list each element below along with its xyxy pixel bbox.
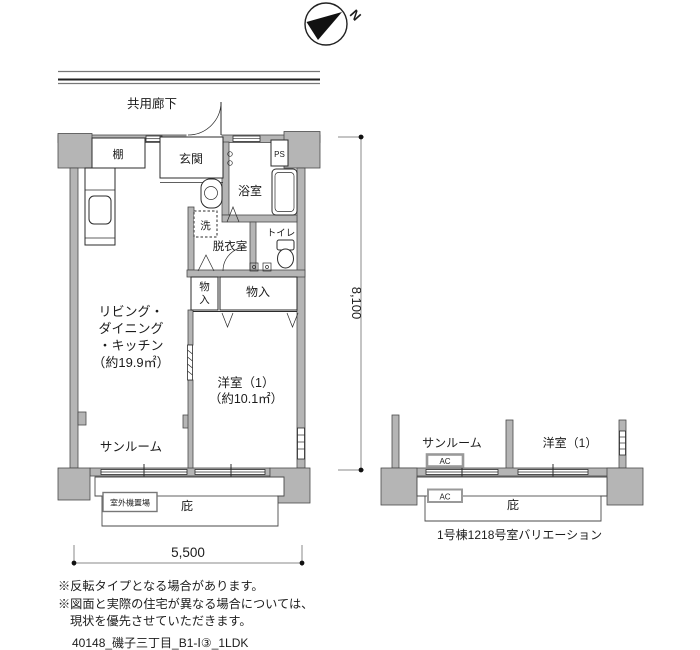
sunroom-label: サンルーム — [100, 440, 162, 454]
sliding-door — [188, 345, 193, 380]
kitchen-counter — [85, 168, 115, 245]
svg-text:（約19.9㎡）: （約19.9㎡） — [92, 355, 169, 370]
washbasin — [201, 179, 222, 208]
outdoor-unit-label: 室外機置場 — [110, 498, 150, 508]
closet-large-label: 物入 — [246, 285, 270, 299]
variation-western-room-label: 洋室（1） — [543, 435, 598, 450]
svg-text:（約10.1㎡）: （約10.1㎡） — [209, 391, 283, 406]
dimension-height-value: 8,100 — [349, 287, 364, 320]
main-plan: 玄関 棚 PS 浴室 — [58, 102, 320, 526]
variation-eaves-label: 庇 — [507, 497, 519, 512]
dressing-room-label: 脱衣室 — [213, 239, 248, 253]
note-line: 現状を優先させていただきます。 — [70, 614, 252, 628]
corner-column — [607, 468, 643, 505]
svg-text:ダイニング: ダイニング — [98, 321, 163, 336]
bathroom-label: 浴室 — [238, 183, 262, 198]
washer-label: 洗 — [200, 220, 211, 232]
svg-text:洋室（1）: 洋室（1） — [218, 375, 275, 390]
eaves-label: 庇 — [181, 498, 193, 513]
note-line: ※図面と実際の住宅が異なる場合については、 — [58, 596, 313, 611]
dressing-room-door-mark — [198, 255, 214, 271]
kitchen-sink — [89, 196, 111, 224]
corridor-label: 共用廊下 — [127, 96, 177, 111]
floor-plan-page: N 共用廊下 — [0, 0, 700, 650]
closet-door-mark — [287, 313, 298, 327]
corner-column — [58, 134, 92, 169]
western-room-label: 洋室（1） （約10.1㎡） — [209, 375, 283, 406]
dimension-width: 5,500 — [72, 545, 305, 566]
compass: N — [305, 3, 364, 45]
dimension-width-value: 5,500 — [171, 545, 205, 560]
north-arrow-icon — [307, 12, 343, 40]
variation-plan: サンルーム 洋室（1） AC AC 庇 1号棟1218号室バリエーション — [381, 415, 643, 542]
toilet-label: トイレ — [267, 228, 296, 239]
svg-text:リビング・: リビング・ — [98, 304, 163, 319]
ac-unit-label: AC — [439, 493, 450, 502]
ldk-label: リビング・ ダイニング ・キッチン （約19.9㎡） — [92, 304, 169, 370]
main-balcony: 室外機置場 庇 — [95, 477, 284, 526]
note-line: ※反転タイプとなる場合があります。 — [58, 578, 264, 593]
compass-north-label: N — [347, 7, 364, 24]
corner-column — [381, 468, 417, 505]
notes: ※反転タイプとなる場合があります。 ※図面と実際の住宅が異なる場合については、 … — [58, 578, 313, 628]
closet-door-mark — [222, 313, 233, 327]
toilet-fixture — [277, 240, 294, 268]
variation-caption: 1号棟1218号室バリエーション — [437, 527, 602, 542]
corner-column — [284, 132, 320, 169]
bathtub — [272, 169, 297, 215]
ac-unit-label: AC — [439, 457, 450, 466]
corner-column — [58, 468, 90, 500]
corridor-boundary — [58, 72, 320, 84]
pipe-space-label: PS — [274, 150, 285, 159]
entrance-label: 玄関 — [179, 151, 203, 166]
plan-code: 40148_磯子三丁目_B1-Ⅰ③_1LDK — [72, 636, 248, 650]
closet-small-label: 物 — [199, 280, 210, 293]
floor-plan-canvas: N 共用廊下 — [0, 0, 700, 650]
svg-text:・キッチン: ・キッチン — [98, 338, 163, 353]
closet-small-label: 入 — [199, 294, 210, 306]
variation-balcony: AC 庇 — [417, 477, 607, 521]
dimension-height: 8,100 — [338, 135, 364, 473]
variation-sunroom-label: サンルーム — [422, 436, 482, 450]
shelf-label: 棚 — [113, 147, 124, 161]
